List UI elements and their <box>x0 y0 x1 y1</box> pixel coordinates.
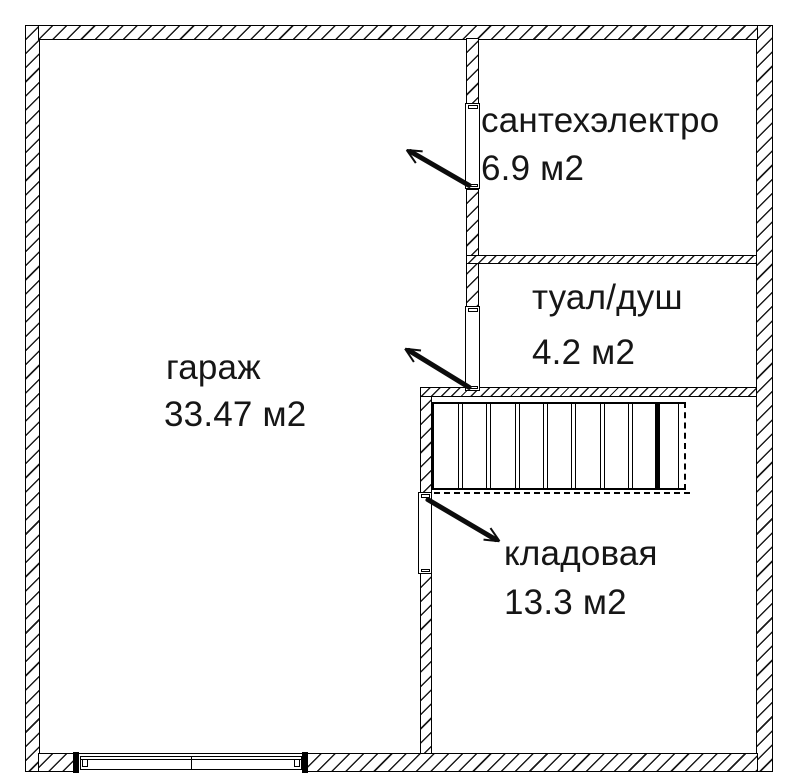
door-frame-toilet <box>465 306 480 391</box>
garage-gate <box>80 756 302 770</box>
wall-santeh-toilet <box>466 255 757 264</box>
arrow-barb <box>405 347 421 351</box>
stair-tread <box>458 404 463 488</box>
room-area-storage: 13.3 м2 <box>504 584 627 623</box>
stair-landing-edge <box>655 404 660 488</box>
door-jamb <box>468 308 478 312</box>
door-frame-storage <box>418 492 432 574</box>
outer-wall-right <box>756 25 773 772</box>
door-frame-santeh <box>465 103 480 189</box>
stair-tread <box>486 404 491 488</box>
door-leaf-santeh <box>407 148 472 188</box>
outer-wall-top <box>38 25 758 40</box>
room-area-garage: 33.47 м2 <box>164 396 306 435</box>
door-leaf-storage <box>425 496 499 542</box>
stair-tread <box>571 404 576 488</box>
stair-tread <box>628 404 633 488</box>
stair-tread <box>600 404 605 488</box>
room-area-toilet: 4.2 м2 <box>532 334 635 373</box>
wall-garage-santeh-mid <box>466 189 479 307</box>
gate-section-divider <box>191 757 192 769</box>
staircase <box>432 402 686 490</box>
wall-garage-storage-upper <box>420 396 432 493</box>
room-label-toilet: туал/душ <box>532 279 683 318</box>
garage-gate-jamb-right <box>302 752 308 773</box>
gate-endcap <box>294 759 300 767</box>
stair-tread <box>515 404 520 488</box>
stair-cut-line <box>678 404 680 488</box>
arrow-barb <box>407 148 423 152</box>
stair-dashed-edge <box>424 492 690 494</box>
arrow-barb <box>483 539 499 543</box>
garage-gate-jamb-left <box>73 752 79 773</box>
door-leaf-toilet <box>406 347 473 390</box>
floor-plan: гараж 33.47 м2 сантехэлектро 6.9 м2 туал… <box>0 0 800 777</box>
wall-garage-santeh-upper <box>466 38 479 105</box>
room-label-santeh: сантехэлектро <box>481 102 719 141</box>
door-jamb <box>421 569 430 573</box>
room-label-storage: кладовая <box>504 535 658 574</box>
gate-endcap <box>82 759 88 767</box>
door-jamb <box>468 105 478 109</box>
stair-tread <box>543 404 548 488</box>
room-label-garage: гараж <box>166 349 261 388</box>
room-area-santeh: 6.9 м2 <box>481 150 584 189</box>
wall-garage-storage-lower <box>420 573 432 754</box>
outer-wall-left <box>25 25 40 772</box>
